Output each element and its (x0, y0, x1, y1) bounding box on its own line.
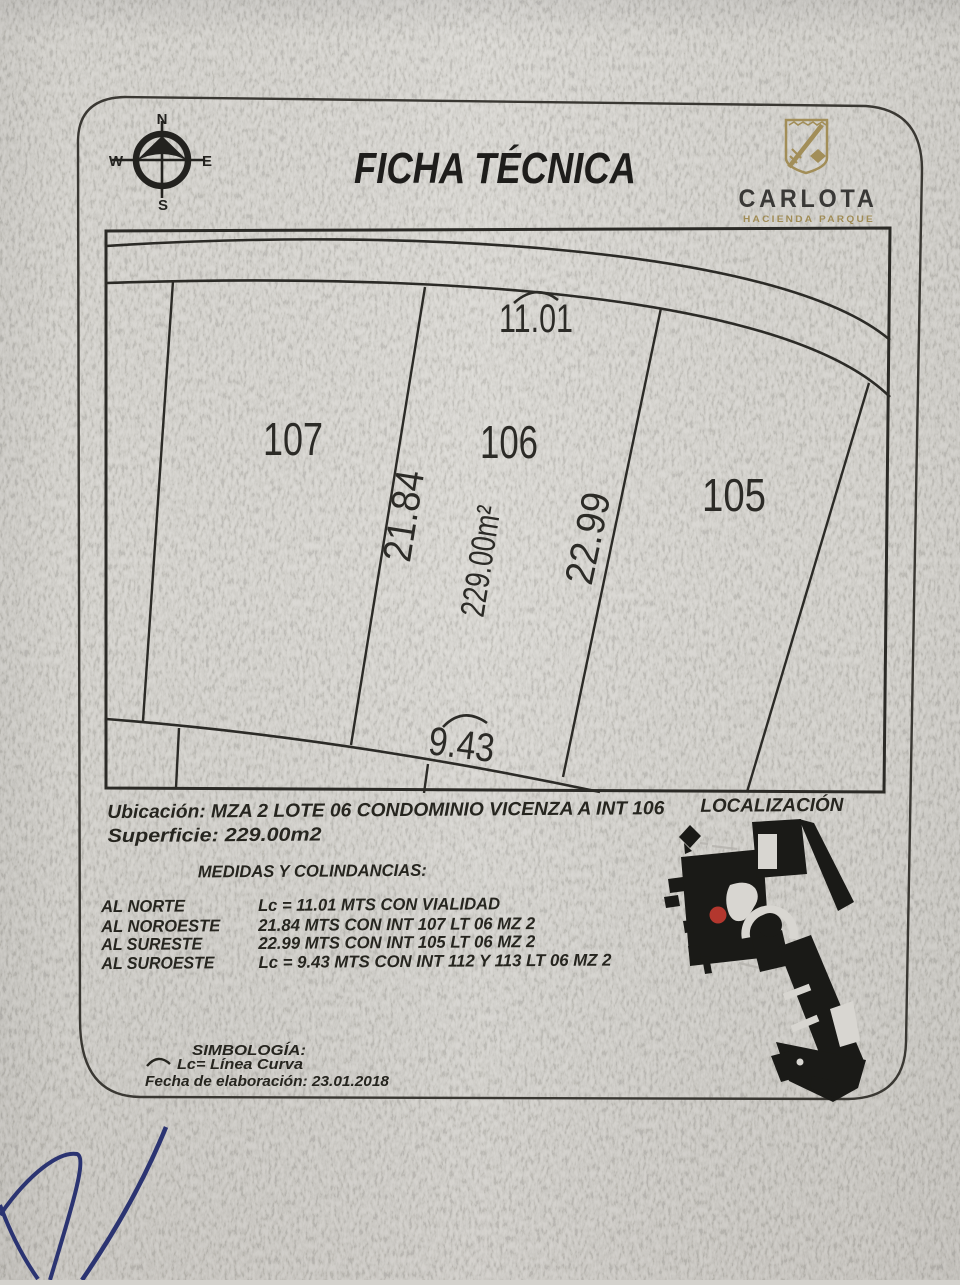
svg-text:106: 106 (480, 416, 538, 468)
svg-text:MEDIDAS Y COLINDANCIAS:: MEDIDAS Y COLINDANCIAS: (198, 861, 427, 882)
svg-text:E: E (202, 153, 212, 170)
svg-text:Fecha de elaboración: 23.01.20: Fecha de elaboración: 23.01.2018 (145, 1073, 390, 1090)
svg-text:N: N (157, 111, 168, 128)
svg-text:CARLOTA: CARLOTA (739, 185, 878, 213)
svg-text:107: 107 (263, 413, 323, 465)
svg-text:Lc = 9.43 MTS CON INT 112 Y 11: Lc = 9.43 MTS CON INT 112 Y 113 LT 06 MZ… (258, 951, 612, 972)
svg-text:Lc= Línea Curva: Lc= Línea Curva (177, 1056, 303, 1073)
svg-text:AL SURESTE: AL SURESTE (100, 934, 203, 954)
svg-text:9.43: 9.43 (426, 719, 497, 771)
svg-text:HACIENDA PARQUE: HACIENDA PARQUE (743, 214, 875, 224)
svg-text:AL NORTE: AL NORTE (100, 896, 186, 916)
svg-text:Lc = 11.01 MTS CON VIALIDAD: Lc = 11.01 MTS CON VIALIDAD (258, 894, 500, 915)
svg-text:105: 105 (702, 469, 766, 521)
svg-text:AL SUROESTE: AL SUROESTE (100, 953, 215, 973)
svg-text:Ubicación: MZA 2 LOTE 06 CON: Ubicación: MZA 2 LOTE 06 CONDOMINIO VICE… (107, 798, 665, 823)
svg-text:S: S (158, 197, 168, 214)
svg-text:AL NOROESTE: AL NOROESTE (100, 916, 221, 936)
svg-text:11.01: 11.01 (499, 297, 573, 341)
svg-text:22.99 MTS CON INT 105 LT 06 MZ: 22.99 MTS CON INT 105 LT 06 MZ 2 (257, 932, 536, 953)
svg-text:W: W (109, 153, 124, 170)
svg-text:LOCALIZACIÓN: LOCALIZACIÓN (700, 794, 844, 817)
svg-text:Superficie: 229.00m2: Superficie: 229.00m2 (107, 825, 322, 847)
svg-text:FICHA TÉCNICA: FICHA TÉCNICA (354, 143, 636, 193)
